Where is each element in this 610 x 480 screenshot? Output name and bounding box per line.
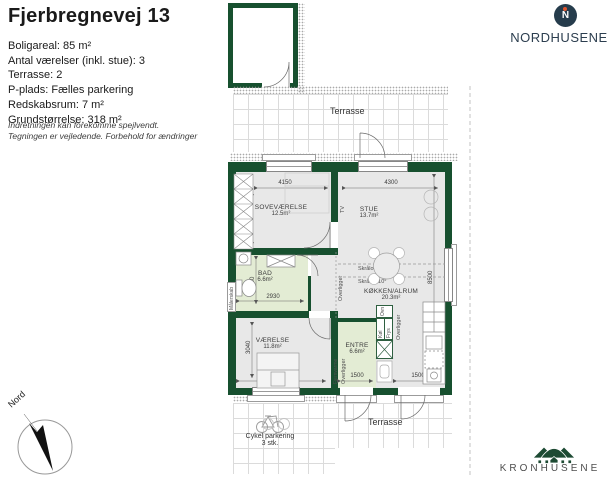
sloped-ceiling-annotation-1: Skråloft 10° [358, 266, 387, 272]
dim-room2-width: 3550 [262, 373, 292, 379]
floor-plan-page: Fjerbregnevej 13 Boligareal: 85 m² Antal… [0, 0, 610, 480]
dim-kitchen-door: 1500 [404, 373, 432, 379]
detail-terrasse: Terrasse: 2 [8, 68, 145, 83]
kitchen-area: 20.3m² [358, 295, 424, 301]
disclaimer-line-1: Indretningen kan forekomme spejlvendt. [8, 120, 197, 131]
disclaimer-line-2: Tegningen er vejledende. Forbehold for æ… [8, 131, 197, 142]
tv-annotation: TV [340, 206, 346, 213]
bedroom-area: 12.5m² [246, 211, 316, 217]
room-label-entry: ENTRE 6.6m² [342, 342, 372, 355]
terrace-bottom-tiles-ext [233, 448, 335, 474]
bike-parking-label: Cykel parkering 3 stk. [241, 433, 299, 447]
bathroom-floor [236, 255, 308, 311]
gravel-strip-shed [298, 3, 305, 93]
dim-bedroom-height: 3000 [246, 207, 252, 220]
room2-door-opening [309, 311, 330, 318]
hall-floor [311, 255, 338, 311]
kitchen-terrace-door-opening [398, 387, 440, 395]
livingroom-window [444, 248, 453, 302]
oven-annotation: Ovn [380, 307, 386, 316]
dim-bathroom-width: 2930 [258, 294, 288, 300]
detail-redskabsrum: Redskabsrum: 7 m² [8, 98, 145, 113]
page-title: Fjerbregnevej 13 [8, 5, 170, 28]
disclaimer: Indretningen kan forekomme spejlvendt. T… [8, 120, 197, 142]
room2-name: VÆRELSE [245, 337, 300, 344]
tech-cabinet-box [376, 340, 393, 359]
room-label-bedroom: SOVEVÆRELSE 12.5m² [246, 204, 316, 217]
fridge-annotation: Køl [378, 331, 384, 339]
room-label-room2: VÆRELSE 11.8m² [245, 337, 300, 350]
nordhusene-wordmark: NORDHUSENE [509, 30, 609, 45]
livingroom-area: 13.7m² [348, 213, 390, 219]
room-label-kitchen: KØKKEN/ALRUM 20.3m² [358, 288, 424, 301]
terrace-bottom-label: Terrasse [368, 417, 403, 427]
bike-parking-line2: 3 stk. [241, 440, 299, 447]
kitchen-name: KØKKEN/ALRUM [358, 288, 424, 295]
livingroom-terrace-door [358, 161, 408, 172]
entry-area: 6.6m² [342, 349, 372, 355]
kronhusene-wordmark: KRONHUSENE [492, 463, 608, 474]
sloped-ceiling-annotation-2: Skråloft 10° [358, 279, 387, 285]
lintel-annotation-kitchen: Overligger [396, 315, 402, 340]
dim-bathroom-height: 2260 [250, 277, 256, 290]
kronhusene-crown-icon [533, 447, 575, 464]
dim-livingroom-width: 4300 [376, 180, 406, 186]
room-label-livingroom: STUE 13.7m² [348, 206, 390, 219]
district-heating-annotation: Fjernvarme [333, 359, 339, 384]
property-details: Boligareal: 85 m² Antal værelser (inkl. … [8, 39, 145, 127]
entry-name: ENTRE [342, 342, 372, 349]
bedroom-door-opening [331, 222, 338, 248]
livingroom-name: STUE [348, 206, 390, 213]
bedroom-name: SOVEVÆRELSE [246, 204, 316, 211]
entry-door-opening [340, 387, 373, 395]
shed-interior [233, 8, 293, 83]
bedroom-window [266, 161, 312, 172]
window-sill-4 [247, 395, 305, 402]
bike-parking-line1: Cykel parkering [241, 433, 299, 440]
window-sill-2 [354, 154, 412, 161]
dim-entry-door: 1500 [343, 373, 371, 379]
gravel-strip-terrace [233, 86, 448, 94]
detail-vaerelser: Antal værelser (inkl. stue): 3 [8, 54, 145, 69]
north-label: Nord [6, 389, 27, 409]
lintel-annotation-entry: Overligger [341, 359, 347, 384]
terrace-top-tiles [233, 94, 448, 152]
compass-icon [18, 414, 72, 474]
terrace-top-label: Terrasse [330, 106, 365, 116]
kitchen-door-step [394, 395, 444, 403]
bathroom-door-opening [308, 255, 311, 276]
dim-room2-height: 3040 [246, 341, 252, 354]
detail-boligareal: Boligareal: 85 m² [8, 39, 145, 54]
dim-right-height: 8500 [428, 271, 434, 284]
window-sill-1 [262, 154, 316, 161]
entry-door-step [336, 395, 377, 403]
room2-area: 11.8m² [245, 344, 300, 350]
lintel-annotation-hall: Overligger [338, 276, 344, 301]
dim-bedroom-width: 4150 [270, 180, 300, 186]
detail-pplads: P-plads: Fælles parkering [8, 83, 145, 98]
meter-cabinet-annotation: Målerskab [229, 287, 235, 310]
nordhusene-initial: N [554, 10, 577, 21]
freezer-annotation: Frys [386, 328, 392, 338]
